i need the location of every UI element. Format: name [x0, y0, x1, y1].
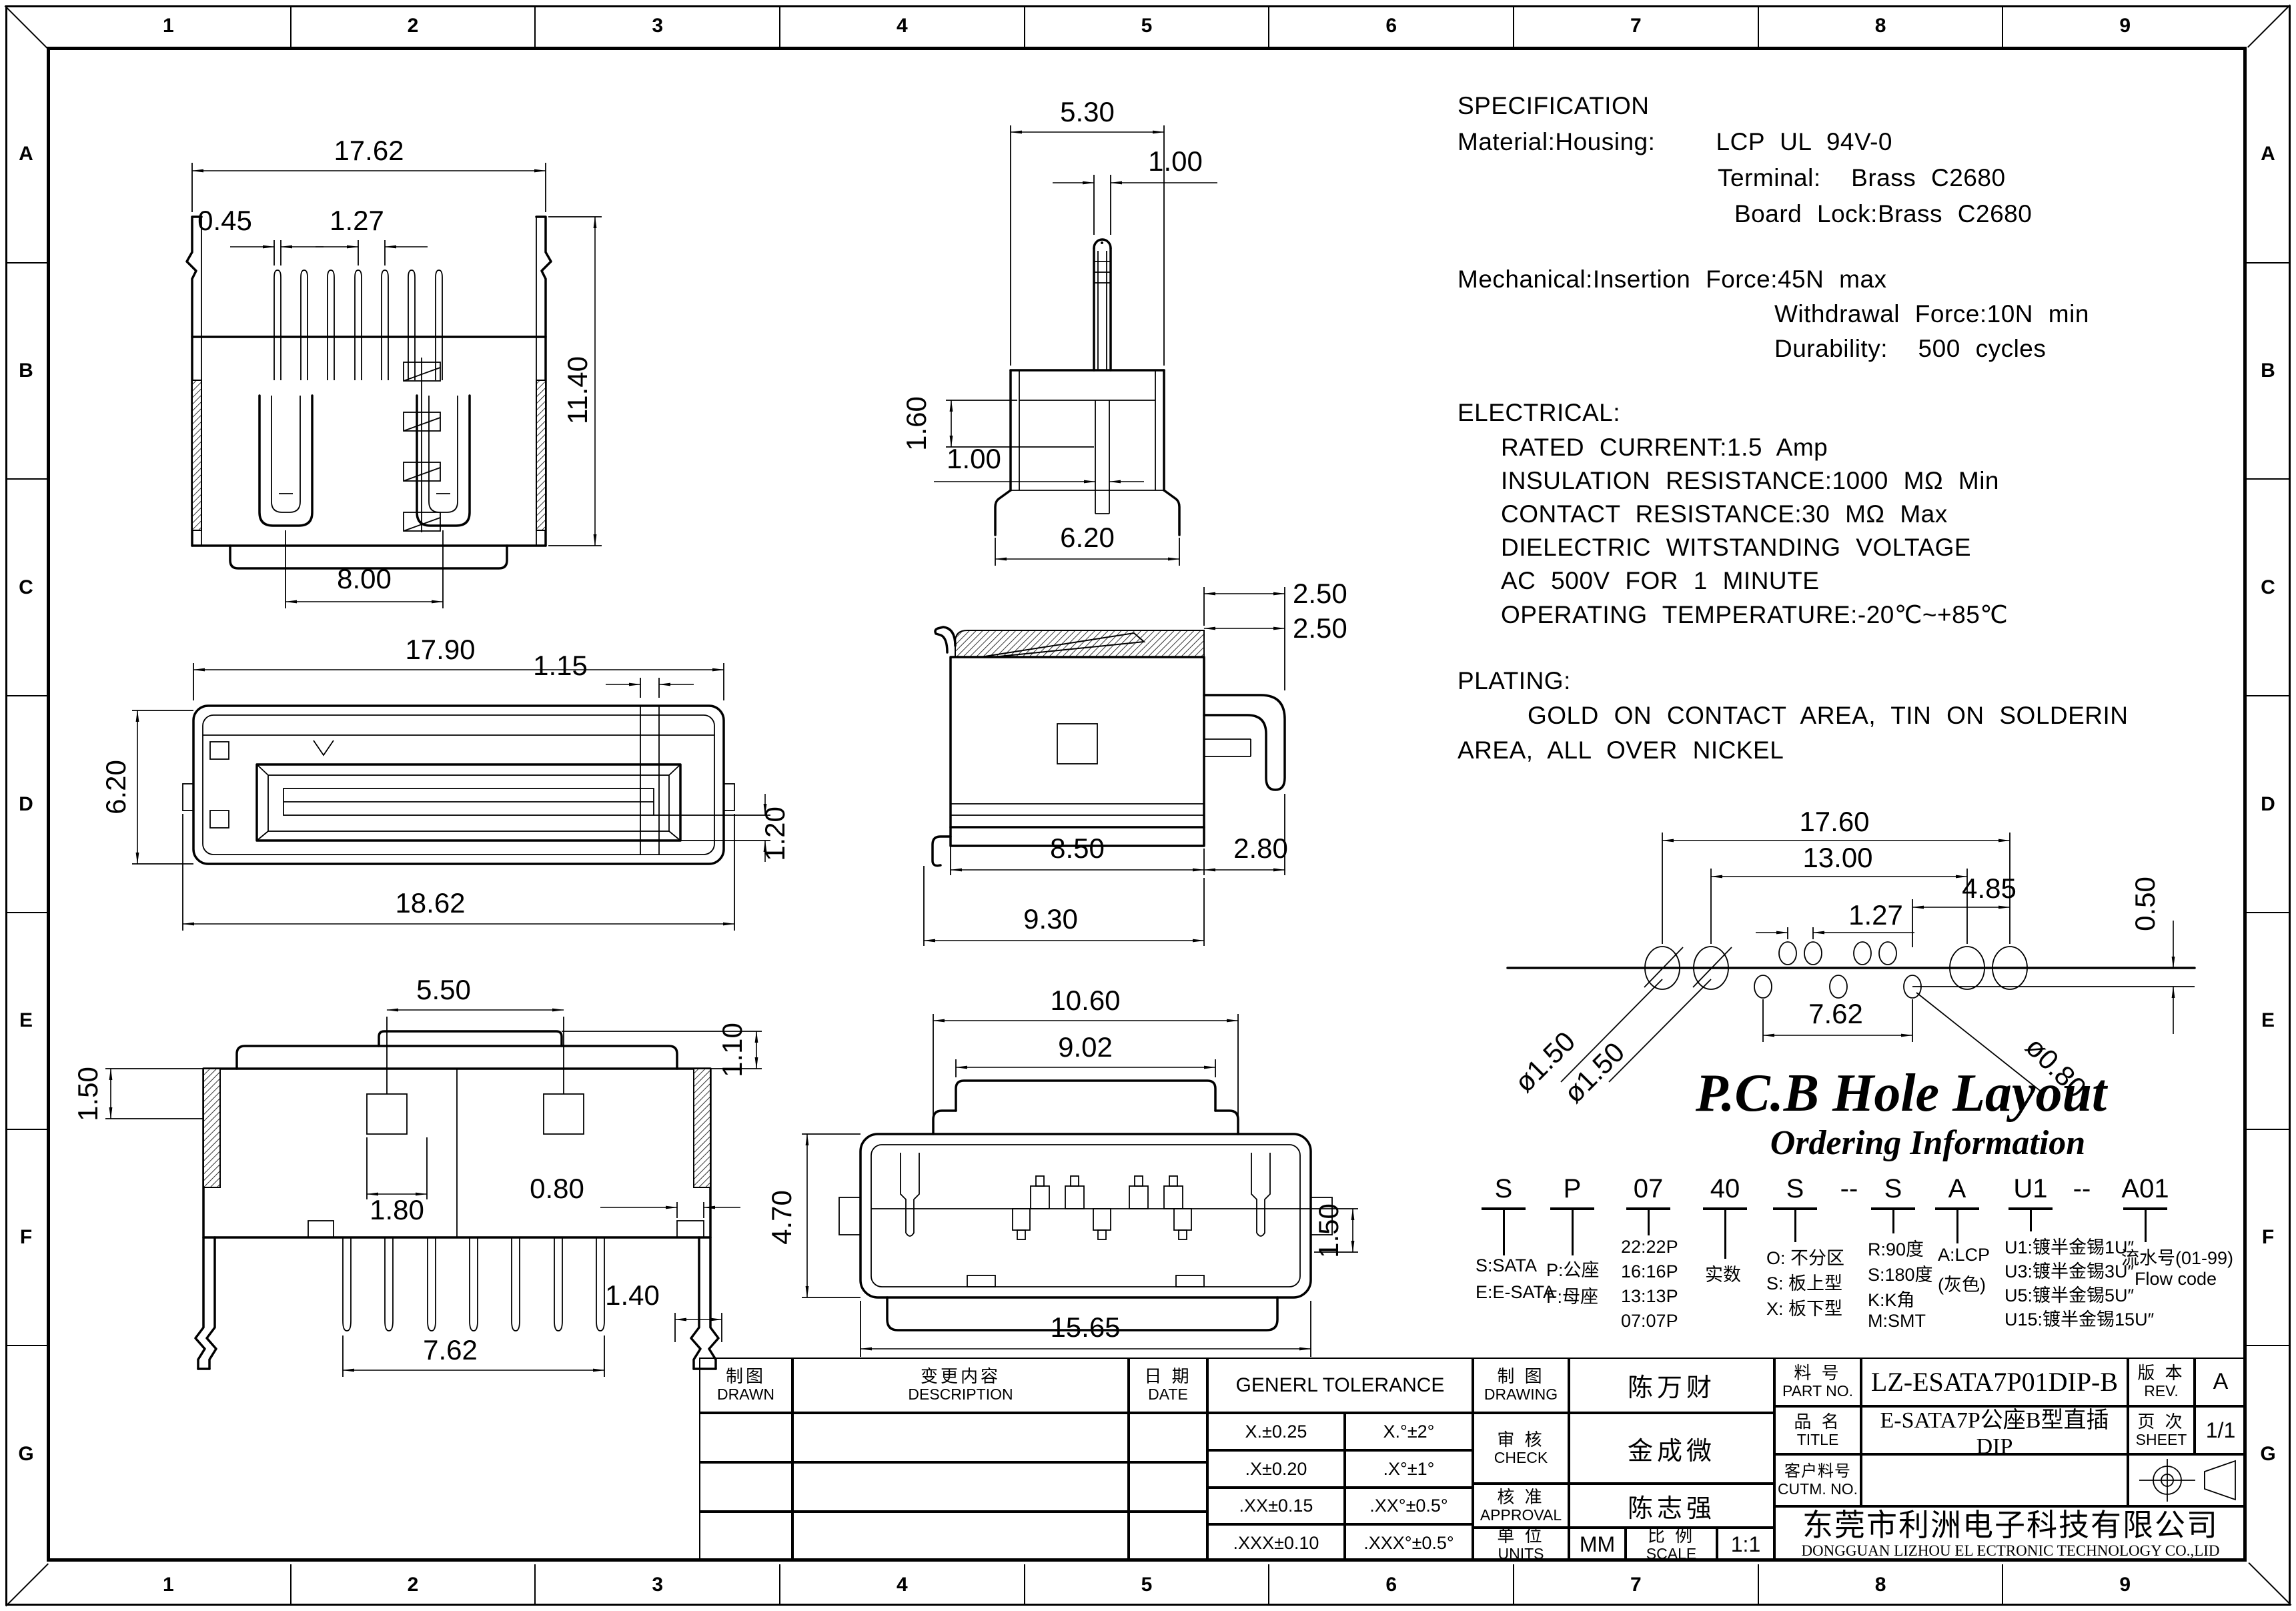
order-option: R:90度 [1868, 1235, 1924, 1261]
order-code-lead [1724, 1209, 1726, 1259]
order-option: 07:07P [1621, 1311, 1678, 1331]
order-code-lead [1503, 1209, 1505, 1255]
row-label: C [2247, 480, 2289, 696]
tb-tolerance-value: .XXX°±0.5° [1345, 1524, 1473, 1562]
col-label: 2 [292, 5, 536, 47]
front-view-dimensions: 17.62 0.45 1.27 11.40 8.00 [192, 135, 602, 608]
tb-check-zh: 审 核 [1497, 1430, 1544, 1450]
pin-side-view: 5.30 1.00 1.60 1.00 6.20 [887, 87, 1227, 580]
order-code: 40 [1688, 1174, 1762, 1204]
order-option: U3:镀半金锡3U″ [2004, 1257, 2134, 1283]
tb-tolerance-value: X.°±2° [1345, 1413, 1473, 1450]
tb-date-en: DATE [1148, 1386, 1188, 1404]
electrical-line: DIELECTRIC WITSTANDING VOLTAGE [1501, 534, 1971, 562]
tb-part-no-en: PART NO. [1782, 1383, 1853, 1400]
tb-drawing-zh: 制 图 [1497, 1367, 1544, 1386]
tb-description-header: 变更内容 DESCRIPTION [792, 1358, 1129, 1413]
order-option: O: 不分区 [1766, 1243, 1844, 1269]
row-label: G [5, 1346, 47, 1562]
row-label: D [5, 696, 47, 913]
order-option: X: 板下型 [1766, 1294, 1842, 1320]
row-label: D [2247, 696, 2289, 913]
tb-part-no-label: 料 号 PART NO. [1774, 1358, 1861, 1406]
tb-revision-row-cell [1129, 1512, 1207, 1562]
dim-label: 1.50 [1313, 1203, 1344, 1258]
tb-description-zh: 变更内容 [921, 1367, 1001, 1386]
order-code-lead [1572, 1209, 1574, 1255]
dim-label: 5.30 [1060, 96, 1115, 127]
spec-line: Durability: 500 cycles [1774, 335, 2046, 363]
order-code-lead [2030, 1209, 2032, 1231]
col-label: 4 [780, 1564, 1025, 1606]
tb-customer-en: CUTM. NO. [1778, 1481, 1858, 1498]
order-option: M:SMT [1868, 1311, 1926, 1331]
dim-label: 17.60 [1799, 806, 1869, 837]
tb-drawing-name: 陈万财 [1569, 1358, 1774, 1413]
dim-label: 7.62 [423, 1334, 478, 1366]
row-label: G [2247, 1346, 2289, 1562]
tb-tolerance-value: .XX°±0.5° [1345, 1488, 1473, 1524]
dim-label: 1.60 [901, 396, 932, 451]
tb-units-label: 单 位 UNITS [1473, 1528, 1569, 1562]
dim-label: 0.50 [2129, 877, 2161, 931]
plating-line: PLATING: [1458, 667, 1571, 695]
order-option: U1:镀半金锡1U″ [2004, 1233, 2134, 1259]
order-option: S:180度 [1868, 1260, 1933, 1286]
tb-customer-label: 客户料号 CUTM. NO. [1774, 1454, 1861, 1506]
col-label: 5 [1025, 5, 1270, 47]
dim-label: 2.80 [1233, 833, 1288, 864]
order-option: K:K角 [1868, 1285, 1915, 1311]
tb-units-en: UNITS [1498, 1546, 1544, 1562]
col-label: 8 [1759, 1564, 2004, 1606]
row-label: C [5, 480, 47, 696]
dim-label: 2.50 [1293, 612, 1347, 644]
dim-label: 18.62 [395, 887, 465, 919]
col-label: 5 [1025, 1564, 1270, 1606]
tb-tolerance-value: .XXX±0.10 [1207, 1524, 1345, 1562]
bottom-view: 10.60 9.02 4.70 1.50 15.65 [767, 974, 1374, 1374]
row-label: E [5, 913, 47, 1130]
col-label: 6 [1269, 1564, 1514, 1606]
dim-label: 17.62 [334, 135, 404, 166]
pcb-layout-title: P.C.B Hole Layout [1588, 1063, 2215, 1124]
dim-label: 4.70 [767, 1190, 797, 1245]
back-view-pins [343, 1237, 604, 1331]
tb-tolerance-value: .XX±0.15 [1207, 1488, 1345, 1524]
spec-line: Terminal: Brass C2680 [1718, 164, 2006, 192]
side-view: 2.50 2.50 8.50 2.80 9.30 [914, 567, 1374, 994]
tb-sheet-label: 页 次 SHEET [2128, 1406, 2195, 1454]
tb-title-zh: 品 名 [1794, 1412, 1841, 1432]
top-view-outline [183, 706, 734, 864]
dim-label: 4.85 [1962, 873, 2017, 904]
electrical-line: RATED CURRENT:1.5 Amp [1501, 434, 1828, 462]
tb-sheet-zh: 页 次 [2137, 1412, 2185, 1432]
company-name-en: DONGGUAN LIZHOU EL ECTRONIC TECHNOLOGY C… [1801, 1542, 2219, 1560]
order-code: A [1920, 1174, 1994, 1204]
order-code-lead [1794, 1209, 1796, 1242]
col-label: 1 [47, 1564, 292, 1606]
tb-revision-row-cell [699, 1413, 792, 1462]
tb-company-cell: 东莞市利洲电子科技有限公司 DONGGUAN LIZHOU EL ECTRONI… [1774, 1506, 2247, 1562]
dim-label: 17.90 [405, 634, 475, 665]
tb-projection-cell [2128, 1454, 2247, 1506]
tb-tolerance-title: GENERL TOLERANCE [1207, 1358, 1473, 1413]
order-code: 07 [1612, 1174, 1685, 1204]
tb-customer-zh: 客户料号 [1784, 1463, 1851, 1481]
tb-rev-value: A [2195, 1358, 2247, 1406]
bottom-view-outline [839, 1081, 1332, 1330]
top-view-dimensions: 17.90 1.15 6.20 18.62 1.20 [100, 634, 790, 931]
order-option: 22:22P [1621, 1237, 1678, 1257]
tb-check-label: 审 核 CHECK [1473, 1413, 1569, 1484]
order-option: S: 板上型 [1766, 1269, 1842, 1295]
row-label: A [2247, 47, 2289, 263]
col-label: 1 [47, 5, 292, 47]
tb-date-zh: 日 期 [1144, 1367, 1191, 1386]
dim-label: 1.40 [605, 1279, 660, 1311]
order-option: U15:镀半金锡15U″ [2004, 1305, 2154, 1331]
col-label: 8 [1759, 5, 2004, 47]
order-option: E:E-SATA [1476, 1282, 1555, 1303]
tb-drawn-header: 制图 DRAWN [699, 1358, 792, 1413]
side-view-outline [933, 627, 1285, 866]
dim-label: 10.60 [1050, 985, 1120, 1016]
tb-scale-value: 1:1 [1717, 1528, 1774, 1562]
dim-label: 5.50 [416, 974, 471, 1005]
order-code: P [1536, 1174, 1609, 1204]
dim-label: 2.50 [1293, 578, 1347, 609]
order-option: (灰色) [1938, 1270, 1986, 1296]
tb-units-value: MM [1569, 1528, 1626, 1562]
dim-label: 1.15 [533, 650, 588, 681]
col-label: 7 [1514, 1564, 1759, 1606]
dim-label: 7.62 [1808, 998, 1863, 1029]
tb-title-en: TITLE [1797, 1432, 1839, 1449]
row-label: B [5, 263, 47, 480]
order-code-lead [1892, 1209, 1894, 1233]
tb-scale-en: SCALE [1646, 1546, 1696, 1562]
border-column-labels-bottom: 1 2 3 4 5 6 7 8 9 [47, 1564, 2247, 1606]
spec-line: Board Lock:Brass C2680 [1734, 200, 2032, 228]
dim-label: 15.65 [1050, 1311, 1120, 1343]
dim-label: 1.00 [1148, 145, 1203, 177]
order-option: 16:16P [1621, 1261, 1678, 1282]
order-code-lead [2145, 1209, 2147, 1242]
pcb-holes [1508, 942, 2195, 998]
tb-units-zh: 单 位 [1497, 1528, 1544, 1546]
tb-revision-row-cell [1129, 1462, 1207, 1512]
tb-check-name: 金成微 [1569, 1413, 1774, 1484]
tb-approval-name: 陈志强 [1569, 1484, 1774, 1528]
back-view: 5.50 1.50 1.10 1.80 0.80 7.62 1.40 [67, 967, 774, 1401]
border-row-labels-left: A B C D E F G [5, 47, 47, 1562]
order-code-lead [1956, 1209, 1958, 1243]
dim-label: 9.30 [1023, 903, 1078, 935]
col-label: 4 [780, 5, 1025, 47]
electrical-line: INSULATION RESISTANCE:1000 MΩ Min [1501, 467, 1999, 495]
row-label: A [5, 47, 47, 263]
dim-label: 0.80 [530, 1173, 584, 1204]
dim-label: 6.20 [100, 760, 131, 815]
tb-title-value: E-SATA7P公座B型直插DIP [1861, 1406, 2128, 1454]
engineering-drawing-sheet: { "sheet": { "cols": ["1","2","3","4","5… [0, 0, 2296, 1611]
row-label: F [5, 1130, 47, 1347]
tb-drawing-label: 制 图 DRAWING [1473, 1358, 1569, 1413]
tb-drawing-en: DRAWING [1484, 1386, 1558, 1404]
order-option: Flow code [2135, 1269, 2217, 1289]
tb-check-en: CHECK [1494, 1450, 1548, 1467]
tb-revision-row-cell [1129, 1413, 1207, 1462]
tb-revision-row-cell [699, 1512, 792, 1562]
dim-label: 8.00 [337, 563, 392, 594]
electrical-line: CONTACT RESISTANCE:30 MΩ Max [1501, 500, 1948, 528]
tb-tolerance-value: .X±0.20 [1207, 1450, 1345, 1488]
tb-revision-row-cell [792, 1512, 1129, 1562]
order-option: 流水号(01-99) [2121, 1243, 2233, 1269]
order-option: P:公座 [1546, 1255, 1600, 1281]
company-name-zh: 东莞市利洲电子科技有限公司 [1802, 1508, 2219, 1543]
row-label: B [2247, 263, 2289, 480]
order-code: S [1467, 1174, 1540, 1204]
tb-description-en: DESCRIPTION [908, 1386, 1013, 1404]
pin-side-outline [995, 239, 1179, 535]
tb-part-no-zh: 料 号 [1794, 1364, 1841, 1383]
dim-label: 8.50 [1050, 833, 1105, 864]
third-angle-projection-icon [2130, 1456, 2245, 1504]
col-label: 3 [536, 1564, 780, 1606]
tb-revision-row-cell [792, 1413, 1129, 1462]
col-label: 9 [2003, 5, 2247, 47]
border-column-labels-top: 1 2 3 4 5 6 7 8 9 [47, 5, 2247, 47]
electrical-line: ELECTRICAL: [1458, 399, 1620, 427]
front-view-pins [274, 270, 442, 380]
tb-approval-en: APPROVAL [1480, 1507, 1562, 1524]
ordering-code-diagram: S S:SATA E:E-SATA P P:公座 F:母座 07 22:22P … [1468, 1171, 2255, 1341]
spec-line: SPECIFICATION [1458, 92, 1649, 120]
tb-tolerance-value: .X°±1° [1345, 1450, 1473, 1488]
order-code-lead [1648, 1209, 1650, 1235]
top-view: 17.90 1.15 6.20 18.62 1.20 [93, 634, 800, 961]
dim-label: 1.27 [330, 205, 384, 236]
tb-tolerance-value: X.±0.25 [1207, 1413, 1345, 1450]
tb-drawn-zh: 制图 [726, 1367, 766, 1386]
order-code-separator: -- [2045, 1174, 2119, 1204]
spec-line: Mechanical:Insertion Force:45N max [1458, 265, 1887, 294]
dim-label: 9.02 [1058, 1031, 1113, 1063]
back-view-outline [195, 1031, 718, 1369]
dim-label: 11.40 [562, 356, 593, 424]
order-option: F:母座 [1546, 1282, 1598, 1308]
ordering-information-title: Ordering Information [1654, 1123, 2201, 1163]
front-view-contacts [259, 358, 470, 532]
tb-sheet-value: 1/1 [2195, 1406, 2247, 1454]
tb-approval-label: 核 准 APPROVAL [1473, 1484, 1569, 1528]
col-label: 7 [1514, 5, 1759, 47]
plating-line: AREA, ALL OVER NICKEL [1458, 736, 1784, 764]
order-code: S [1856, 1174, 1930, 1204]
dim-label: 1.00 [947, 443, 1001, 474]
dim-label: 0.45 [197, 205, 252, 236]
tb-sheet-en: SHEET [2136, 1432, 2187, 1449]
dim-label: 1.10 [716, 1023, 748, 1077]
order-option: 实数 [1705, 1260, 1741, 1286]
dim-label: 1.80 [370, 1194, 424, 1225]
tb-rev-label: 版 本 REV. [2128, 1358, 2195, 1406]
col-label: 9 [2003, 1564, 2247, 1606]
dim-label: 1.50 [72, 1067, 103, 1121]
plating-line: GOLD ON CONTACT AREA, TIN ON SOLDERIN [1528, 702, 2129, 730]
front-view: 17.62 0.45 1.27 11.40 8.00 [93, 93, 680, 634]
back-view-dimensions: 5.50 1.50 1.10 1.80 0.80 7.62 1.40 [72, 974, 762, 1377]
tb-approval-zh: 核 准 [1497, 1488, 1544, 1507]
col-label: 3 [536, 5, 780, 47]
tb-drawn-en: DRAWN [717, 1386, 774, 1404]
order-option: S:SATA [1476, 1255, 1537, 1276]
spec-line: Withdrawal Force:10N min [1774, 300, 2089, 328]
order-option: A:LCP [1938, 1245, 1990, 1265]
electrical-line: OPERATING TEMPERATURE:-20℃~+85℃ [1501, 600, 2008, 629]
dim-label: 1.20 [759, 807, 790, 861]
dim-label: 6.20 [1060, 522, 1115, 553]
tb-scale-zh: 比 例 [1648, 1528, 1695, 1546]
tb-title-label: 品 名 TITLE [1774, 1406, 1861, 1454]
tb-scale-label: 比 例 SCALE [1626, 1528, 1717, 1562]
electrical-line: AC 500V FOR 1 MINUTE [1501, 567, 1819, 595]
row-label: E [2247, 913, 2289, 1130]
order-option: U5:镀半金锡5U″ [2004, 1281, 2134, 1307]
dim-label: 13.00 [1802, 842, 1872, 873]
col-label: 2 [292, 1564, 536, 1606]
title-block: 制图 DRAWN 变更内容 DESCRIPTION 日 期 DATE GENER… [699, 1358, 2247, 1562]
tb-part-no-value: LZ-ESATA7P01DIP-B [1861, 1358, 2128, 1406]
order-option: 13:13P [1621, 1286, 1678, 1307]
order-code: A01 [2109, 1174, 2182, 1204]
tb-rev-zh: 版 本 [2137, 1364, 2185, 1383]
spec-line: Material:Housing: LCP UL 94V-0 [1458, 128, 1892, 156]
tb-date-header: 日 期 DATE [1129, 1358, 1207, 1413]
front-view-outline [187, 217, 551, 568]
tb-revision-row-cell [792, 1462, 1129, 1512]
dim-label: 1.27 [1848, 899, 1903, 931]
tb-customer-value [1861, 1454, 2128, 1506]
tb-rev-en: REV. [2144, 1383, 2179, 1400]
col-label: 6 [1269, 5, 1514, 47]
tb-revision-row-cell [699, 1462, 792, 1512]
